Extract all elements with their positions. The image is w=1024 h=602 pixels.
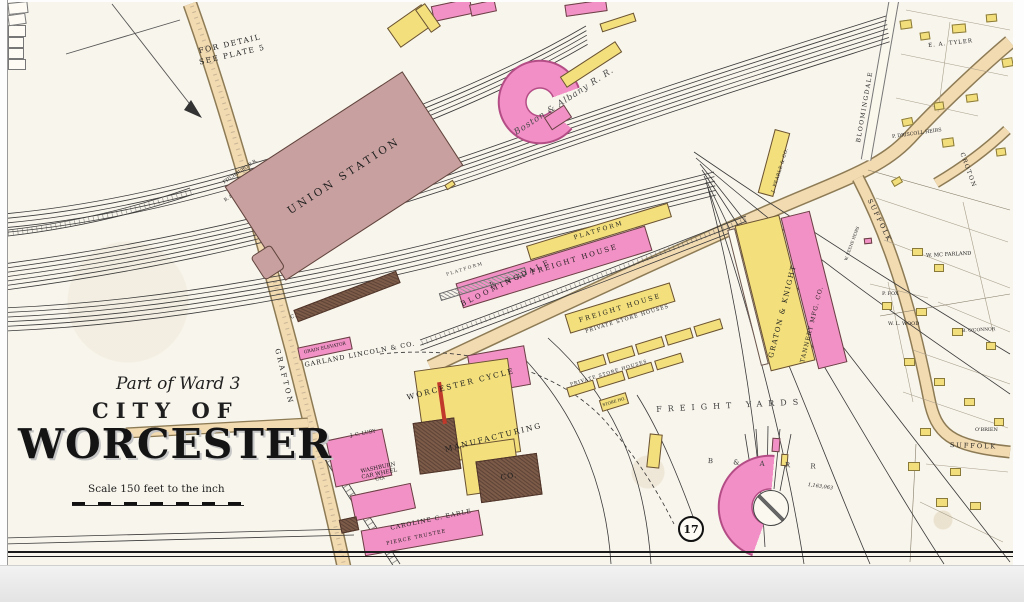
title-part-ward: Part of Ward 3 [116, 376, 240, 393]
map-canvas[interactable]: UNION STATION PLATFORM B. & A. FREIGHT H… [8, 2, 1013, 565]
plate-number-badge: 17 [678, 516, 704, 542]
house [995, 147, 1006, 156]
viewer-toolbar: − + ◀ ▲ ▼ ▶ [0, 565, 1024, 602]
house [882, 302, 892, 310]
house [919, 31, 930, 40]
house [986, 342, 996, 350]
turntable [753, 490, 789, 526]
house [904, 358, 915, 366]
house [934, 378, 945, 386]
house [920, 428, 931, 436]
owner-obrien: O'BRIEN [975, 428, 998, 433]
neatline-outer [8, 551, 1013, 553]
title-city-of: CITY OF [92, 400, 239, 421]
map-viewer-window: UNION STATION PLATFORM B. & A. FREIGHT H… [0, 0, 1024, 602]
scale-bar [72, 502, 244, 506]
house [941, 137, 954, 148]
house [936, 498, 948, 507]
scale-text: Scale 150 feet to the inch [88, 484, 225, 495]
house [908, 462, 920, 471]
house [912, 248, 923, 256]
house [933, 101, 944, 110]
neatline-inner [8, 556, 1013, 557]
house [934, 264, 944, 272]
owner-fox: P. FOX [882, 292, 899, 297]
house-pink [864, 238, 873, 245]
street-suffolk-lower: SUFFOLK [950, 442, 998, 450]
lot-lines [868, 10, 1010, 562]
house [916, 308, 927, 316]
compass-rose [66, 4, 202, 118]
house [966, 93, 979, 103]
turntable-shed-pink [772, 438, 781, 453]
house [970, 502, 981, 510]
house [986, 14, 998, 23]
title-worcester: WORCESTER [18, 424, 332, 465]
viewer-left-edge [7, 0, 8, 565]
house [899, 19, 912, 30]
owner-wood: W. L. WOOD [888, 322, 919, 327]
house [994, 418, 1004, 426]
house [950, 468, 961, 476]
house [1001, 57, 1013, 68]
house [952, 23, 967, 33]
house [964, 398, 975, 406]
